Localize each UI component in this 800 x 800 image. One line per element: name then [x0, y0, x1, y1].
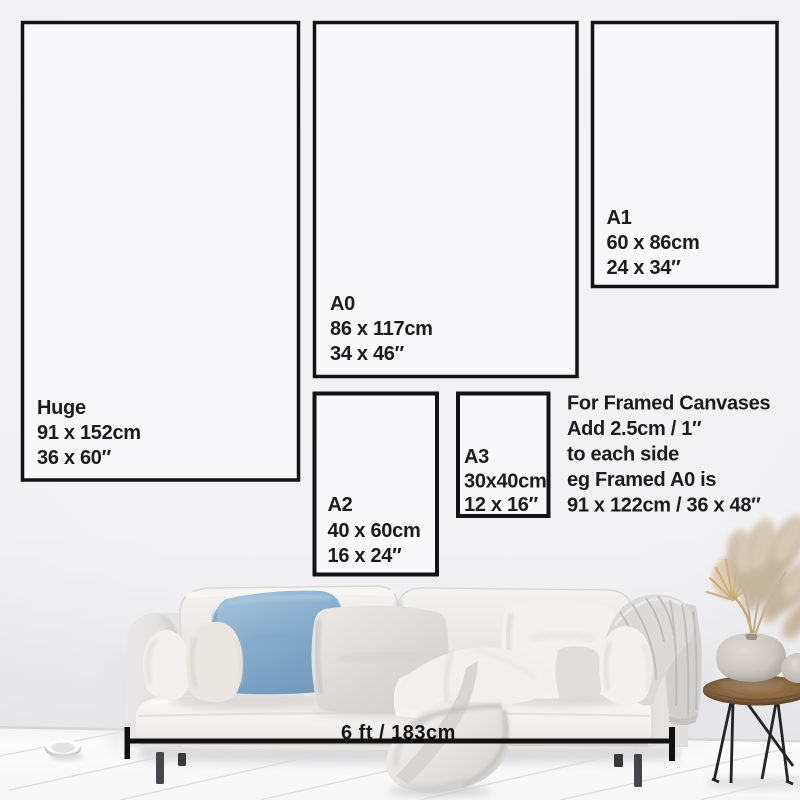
svg-text:60 x 86cm: 60 x 86cm: [607, 232, 700, 254]
svg-text:30x40cm: 30x40cm: [464, 471, 546, 493]
svg-text:eg Framed A0 is: eg Framed A0 is: [567, 469, 716, 491]
svg-text:A3: A3: [464, 446, 489, 468]
svg-text:34 x 46″: 34 x 46″: [330, 343, 405, 365]
svg-text:For Framed Canvases: For Framed Canvases: [567, 393, 770, 415]
svg-text:A2: A2: [328, 494, 353, 516]
svg-text:40 x 60cm: 40 x 60cm: [328, 520, 421, 542]
svg-text:24 x 34″: 24 x 34″: [607, 257, 682, 279]
svg-text:86 x 117cm: 86 x 117cm: [330, 318, 433, 340]
svg-text:6 ft / 183cm: 6 ft / 183cm: [341, 722, 456, 744]
svg-text:16 x 24″: 16 x 24″: [328, 545, 403, 567]
svg-text:36 x 60″: 36 x 60″: [37, 447, 112, 469]
svg-text:A1: A1: [607, 207, 632, 229]
svg-text:to each side: to each side: [567, 444, 679, 466]
svg-text:Huge: Huge: [37, 397, 86, 419]
svg-text:91 x 152cm: 91 x 152cm: [37, 422, 141, 444]
svg-text:12 x 16″: 12 x 16″: [464, 494, 539, 516]
svg-text:91 x 122cm / 36 x 48″: 91 x 122cm / 36 x 48″: [567, 495, 761, 517]
svg-text:Add 2.5cm / 1″: Add 2.5cm / 1″: [567, 418, 702, 440]
svg-text:A0: A0: [330, 293, 355, 315]
